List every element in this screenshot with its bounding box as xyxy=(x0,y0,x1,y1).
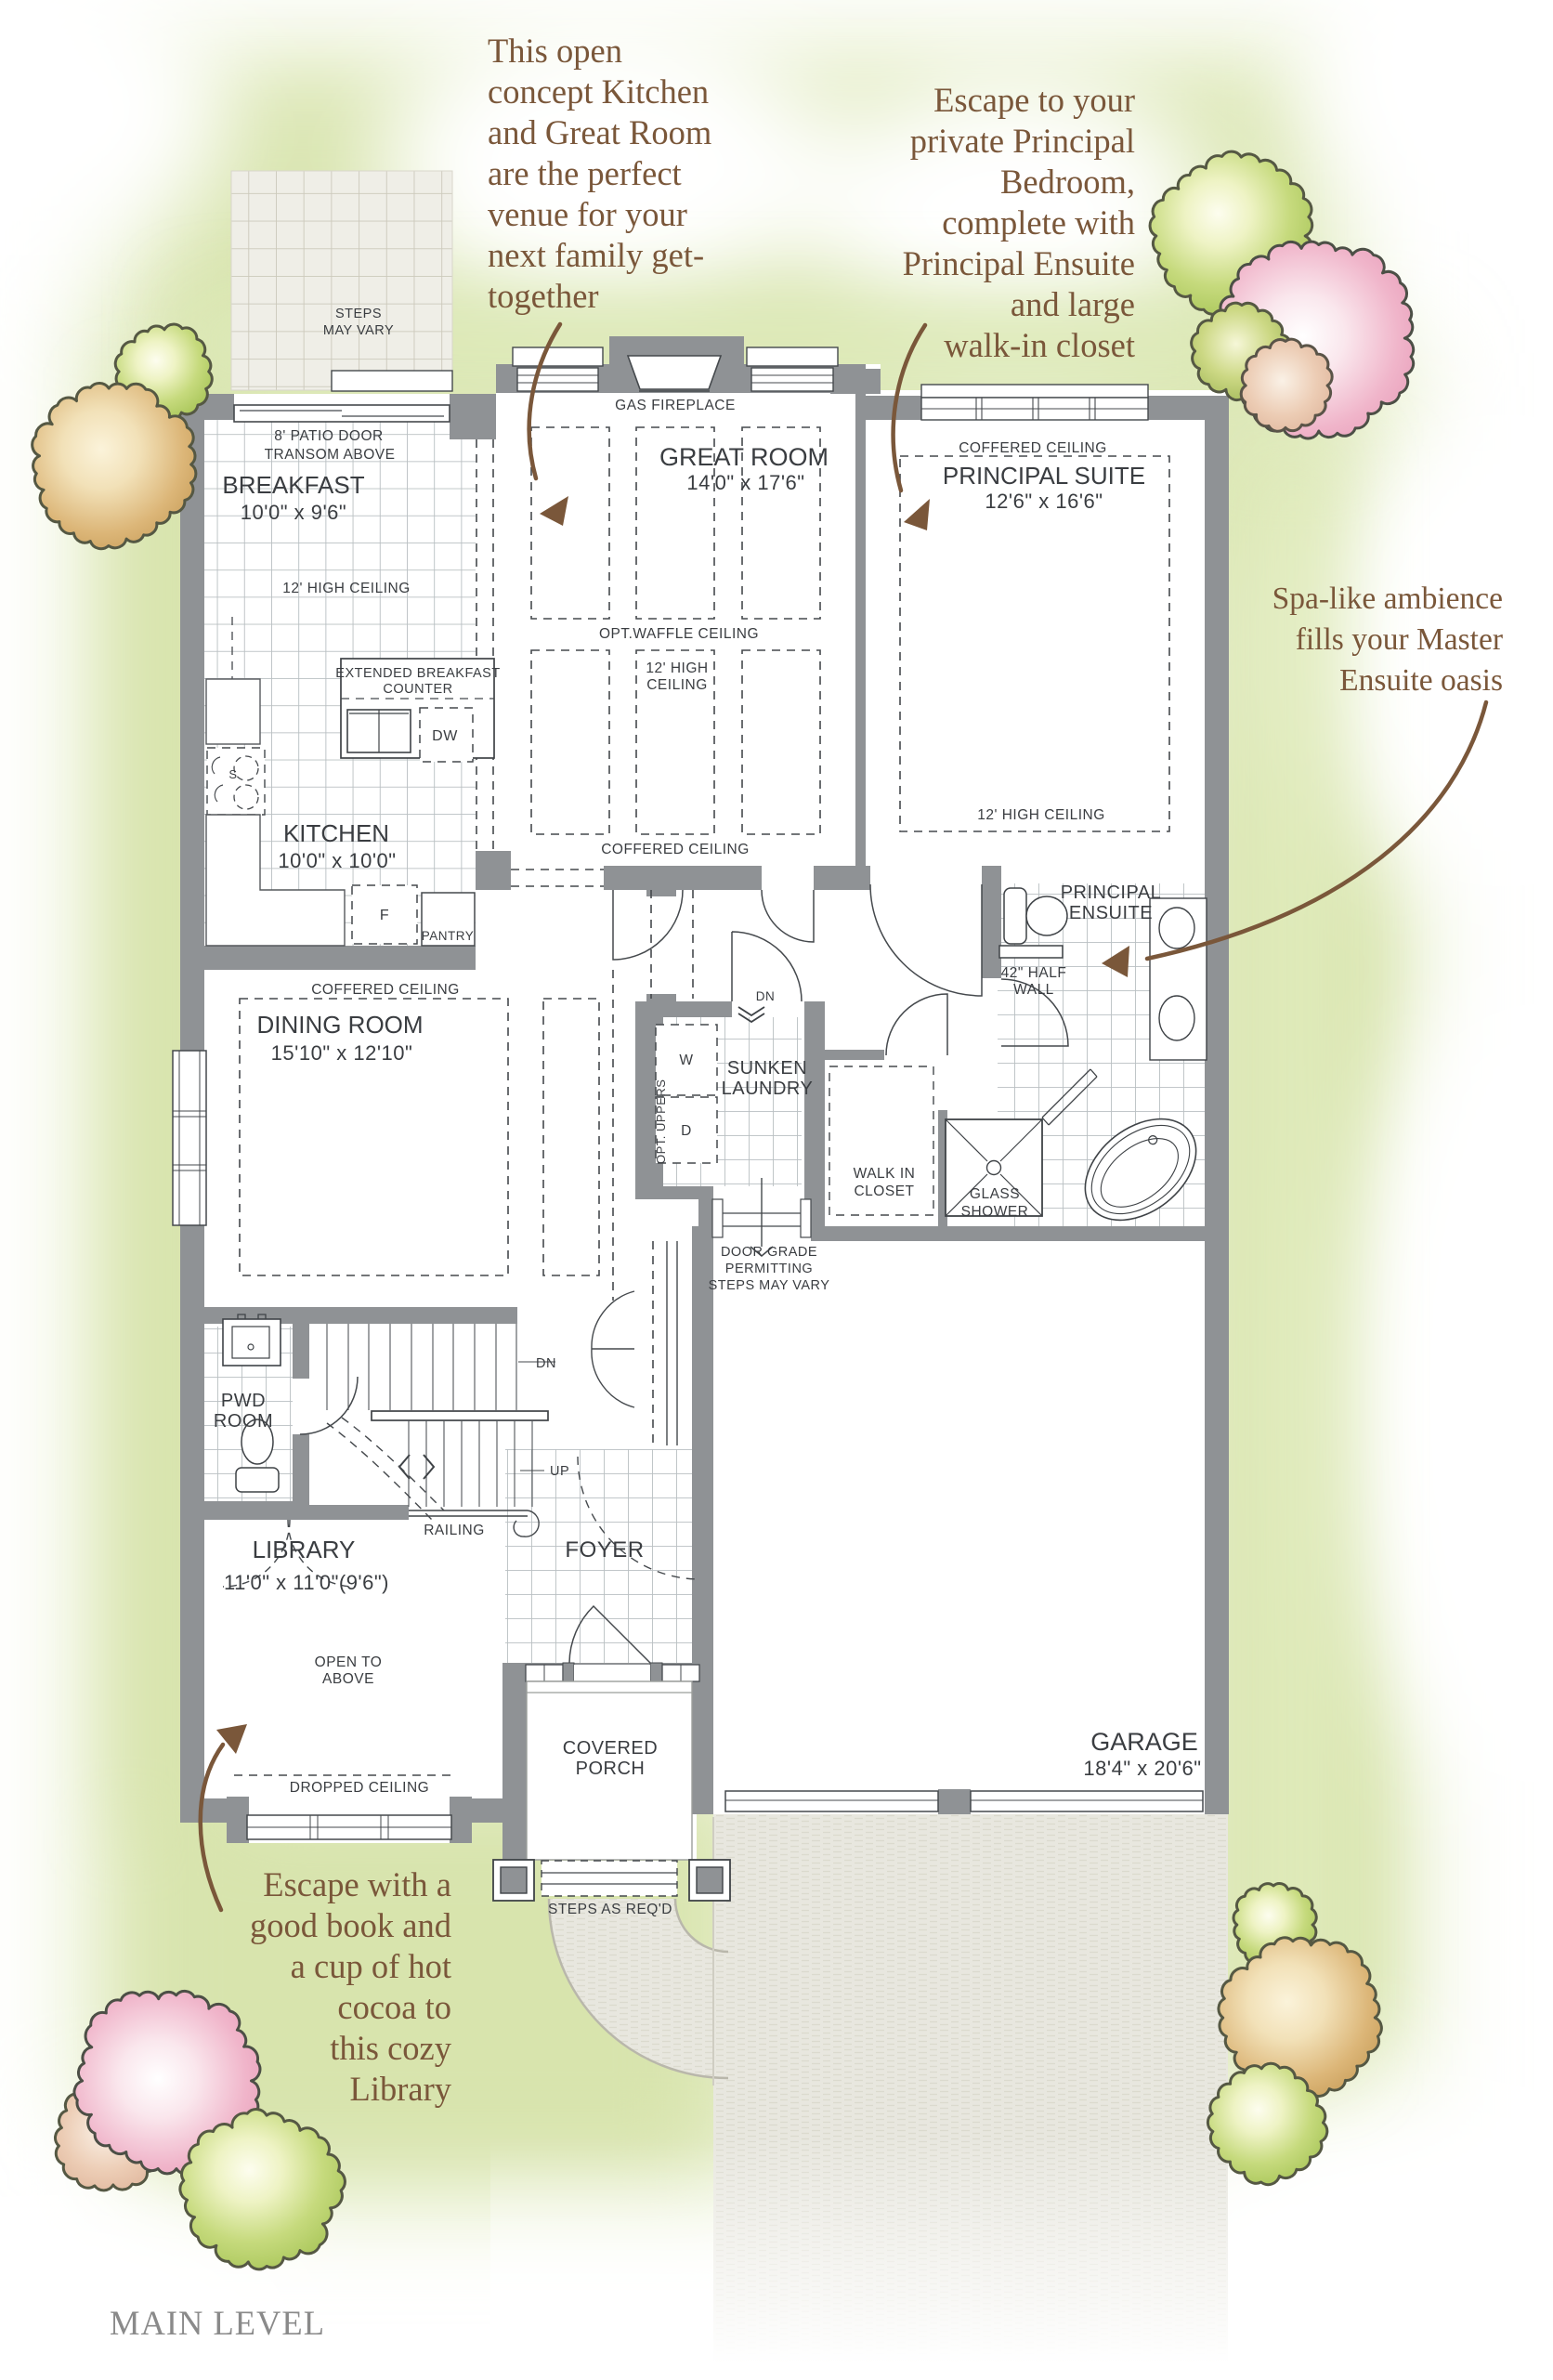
svg-text:Spa-like ambience: Spa-like ambience xyxy=(1272,582,1503,616)
svg-text:CEILING: CEILING xyxy=(646,677,708,693)
svg-text:and Great Room: and Great Room xyxy=(488,113,711,151)
svg-text:42" HALF: 42" HALF xyxy=(1001,965,1067,981)
svg-text:PRINCIPAL: PRINCIPAL xyxy=(1061,883,1162,903)
svg-text:Bedroom,: Bedroom, xyxy=(1000,163,1135,201)
svg-text:BREAKFAST: BREAKFAST xyxy=(222,471,364,499)
svg-text:RAILING: RAILING xyxy=(424,1523,485,1538)
svg-text:15'10" x 12'10": 15'10" x 12'10" xyxy=(271,1041,413,1065)
svg-text:COVERED: COVERED xyxy=(563,1738,658,1759)
svg-text:cocoa to: cocoa to xyxy=(337,1988,451,2026)
svg-text:COFFERED CEILING: COFFERED CEILING xyxy=(959,440,1107,456)
svg-text:STEPS MAY VARY: STEPS MAY VARY xyxy=(709,1278,830,1293)
svg-text:OPT. UPPERS: OPT. UPPERS xyxy=(654,1079,668,1164)
svg-text:Library: Library xyxy=(350,2070,452,2108)
svg-text:LIBRARY: LIBRARY xyxy=(253,1536,356,1563)
svg-text:12' HIGH: 12' HIGH xyxy=(646,660,708,676)
svg-text:MAIN LEVEL: MAIN LEVEL xyxy=(110,2304,325,2342)
svg-text:Escape to your: Escape to your xyxy=(933,81,1135,119)
svg-text:DROPPED CEILING: DROPPED CEILING xyxy=(290,1780,429,1796)
svg-text:PERMITTING: PERMITTING xyxy=(725,1262,813,1276)
svg-text:STEPS AS REQ'D: STEPS AS REQ'D xyxy=(548,1902,672,1917)
svg-text:KITCHEN: KITCHEN xyxy=(283,819,389,847)
svg-text:DW: DW xyxy=(432,728,458,744)
svg-text:W: W xyxy=(679,1053,693,1068)
svg-text:WALL: WALL xyxy=(1013,982,1054,998)
svg-text:14'0" x 17'6": 14'0" x 17'6" xyxy=(686,471,804,494)
svg-text:UP: UP xyxy=(550,1464,569,1479)
svg-text:complete with: complete with xyxy=(942,203,1135,242)
svg-text:WALK IN: WALK IN xyxy=(854,1166,916,1182)
svg-text:ENSUITE: ENSUITE xyxy=(1069,903,1153,923)
svg-text:TRANSOM ABOVE: TRANSOM ABOVE xyxy=(265,447,396,463)
svg-text:DINING ROOM: DINING ROOM xyxy=(256,1011,423,1039)
svg-text:GLASS: GLASS xyxy=(970,1186,1020,1202)
svg-text:GARAGE: GARAGE xyxy=(1090,1728,1198,1756)
svg-text:LAUNDRY: LAUNDRY xyxy=(722,1079,814,1099)
svg-text:and large: and large xyxy=(1011,285,1135,323)
svg-text:SHOWER: SHOWER xyxy=(961,1204,1029,1220)
svg-text:11'0" x 11'0"(9'6"): 11'0" x 11'0"(9'6") xyxy=(224,1571,389,1594)
svg-text:venue for your: venue for your xyxy=(488,195,687,233)
svg-text:12' HIGH CEILING: 12' HIGH CEILING xyxy=(282,581,411,596)
svg-text:Ensuite oasis: Ensuite oasis xyxy=(1339,663,1503,698)
svg-text:COFFERED CEILING: COFFERED CEILING xyxy=(601,842,750,857)
svg-text:10'0" x 9'6": 10'0" x 9'6" xyxy=(241,501,346,524)
svg-text:are the perfect: are the perfect xyxy=(488,154,682,192)
svg-text:DN: DN xyxy=(756,989,776,1003)
svg-text:OPEN TO: OPEN TO xyxy=(315,1654,383,1670)
svg-text:walk-in closet: walk-in closet xyxy=(944,326,1135,364)
svg-text:18'4" x 20'6": 18'4" x 20'6" xyxy=(1083,1757,1201,1780)
svg-text:Principal Ensuite: Principal Ensuite xyxy=(903,244,1135,282)
svg-text:F: F xyxy=(380,908,389,923)
svg-text:SUNKEN: SUNKEN xyxy=(727,1058,807,1079)
svg-text:MAY VARY: MAY VARY xyxy=(323,323,394,338)
svg-text:8' PATIO DOOR: 8' PATIO DOOR xyxy=(274,428,383,444)
svg-text:FOYER: FOYER xyxy=(565,1537,644,1563)
svg-text:S: S xyxy=(228,767,237,781)
svg-text:12'6" x 16'6": 12'6" x 16'6" xyxy=(985,490,1103,513)
svg-text:This open: This open xyxy=(488,32,622,70)
svg-text:12' HIGH CEILING: 12' HIGH CEILING xyxy=(977,807,1105,823)
svg-text:a cup of hot: a cup of hot xyxy=(291,1947,451,1985)
svg-text:D: D xyxy=(681,1123,692,1139)
svg-text:EXTENDED BREAKFAST: EXTENDED BREAKFAST xyxy=(335,666,500,681)
svg-text:COFFERED CEILING: COFFERED CEILING xyxy=(311,982,460,998)
svg-text:GREAT ROOM: GREAT ROOM xyxy=(659,443,829,471)
svg-text:ABOVE: ABOVE xyxy=(322,1671,374,1687)
svg-text:STEPS: STEPS xyxy=(335,307,382,321)
svg-text:PRINCIPAL SUITE: PRINCIPAL SUITE xyxy=(943,462,1145,490)
svg-text:next family get-: next family get- xyxy=(488,236,704,274)
svg-text:DN: DN xyxy=(536,1356,556,1371)
svg-text:private Principal: private Principal xyxy=(910,122,1135,160)
svg-text:CLOSET: CLOSET xyxy=(854,1183,914,1199)
svg-text:10'0" x 10'0": 10'0" x 10'0" xyxy=(278,849,396,872)
svg-text:concept Kitchen: concept Kitchen xyxy=(488,72,709,111)
svg-text:PANTRY: PANTRY xyxy=(422,929,475,943)
svg-text:OPT.WAFFLE CEILING: OPT.WAFFLE CEILING xyxy=(599,626,759,642)
svg-text:ROOM: ROOM xyxy=(214,1411,273,1432)
svg-text:Escape with a: Escape with a xyxy=(263,1865,451,1903)
svg-text:PWD: PWD xyxy=(221,1391,266,1411)
svg-text:PORCH: PORCH xyxy=(576,1759,646,1779)
svg-text:GAS FIREPLACE: GAS FIREPLACE xyxy=(615,398,736,413)
svg-text:fills your Master: fills your Master xyxy=(1296,622,1503,657)
svg-text:this cozy: this cozy xyxy=(330,2029,452,2067)
svg-text:good book and: good book and xyxy=(250,1906,451,1944)
svg-text:together: together xyxy=(488,277,599,315)
svg-text:COUNTER: COUNTER xyxy=(383,682,452,697)
svg-text:DOOR GRADE: DOOR GRADE xyxy=(721,1245,817,1260)
